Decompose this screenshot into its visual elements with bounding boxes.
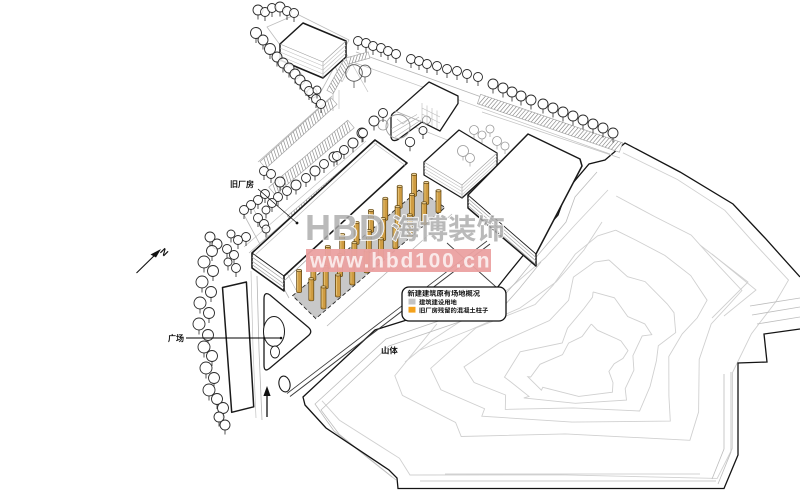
svg-text:广场: 广场: [168, 333, 184, 343]
svg-text:HBD: HBD: [305, 207, 386, 248]
svg-text:www.hbd100.cn: www.hbd100.cn: [309, 250, 491, 273]
svg-text:旧厂房: 旧厂房: [230, 179, 254, 189]
